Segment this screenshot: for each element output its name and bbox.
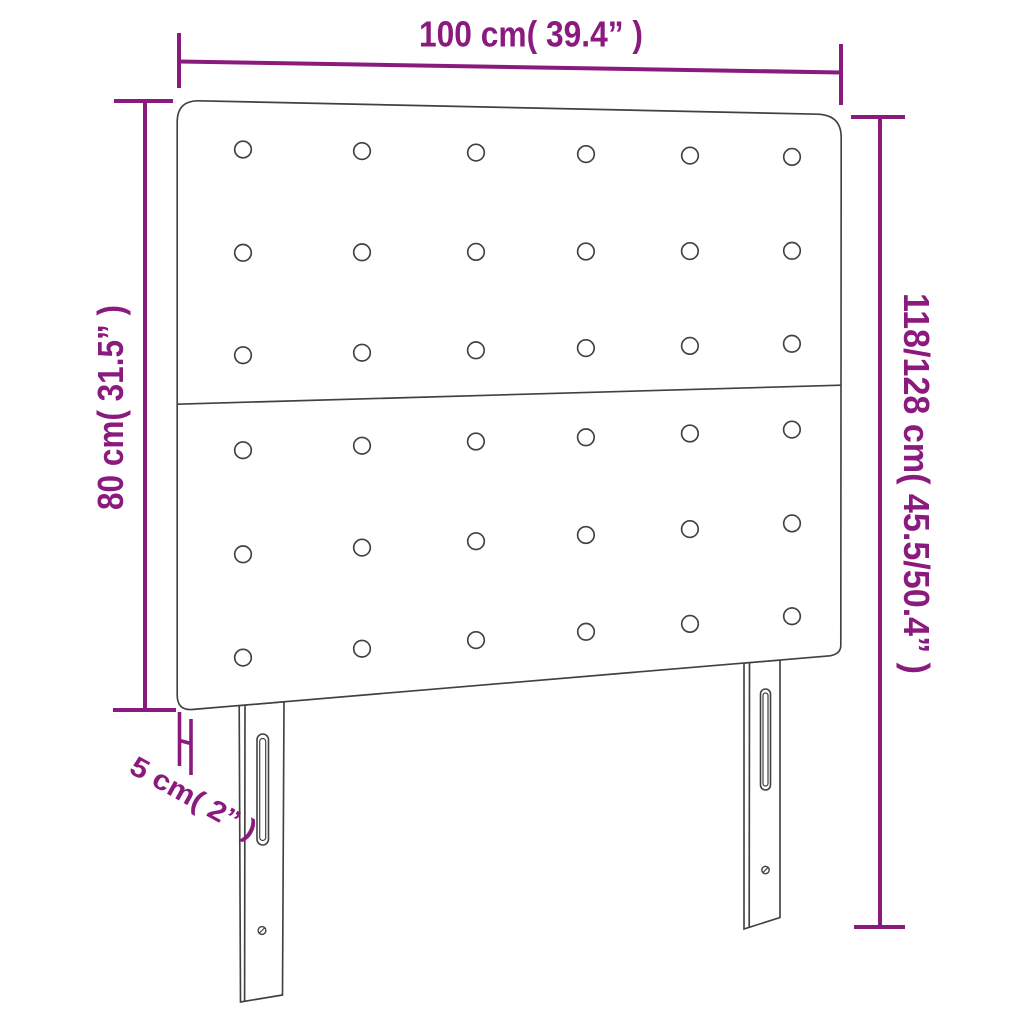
svg-text:80 cm( 31.5” ): 80 cm( 31.5” ): [90, 305, 131, 510]
svg-text:118/128 cm( 45.5/50.4” ): 118/128 cm( 45.5/50.4” ): [896, 293, 937, 674]
svg-text:100 cm( 39.4” ): 100 cm( 39.4” ): [419, 14, 643, 55]
